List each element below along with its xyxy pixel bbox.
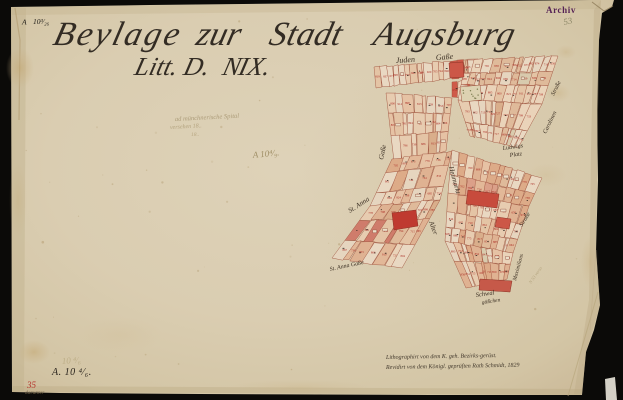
- svg-text:786: 786: [403, 144, 408, 148]
- svg-text:833: 833: [437, 174, 442, 178]
- svg-text:714: 714: [512, 78, 517, 82]
- svg-text:859: 859: [492, 270, 497, 274]
- svg-text:750: 750: [405, 73, 410, 77]
- svg-text:10 ⁴⁄₆: 10 ⁴⁄₆: [61, 355, 81, 366]
- svg-text:665: 665: [416, 229, 421, 233]
- svg-text:804: 804: [400, 254, 405, 258]
- svg-text:769: 769: [468, 166, 473, 170]
- svg-text:Augsburg: Augsburg: [368, 15, 521, 52]
- svg-text:736: 736: [436, 158, 441, 162]
- svg-text:867: 867: [343, 248, 348, 252]
- svg-text:755: 755: [471, 272, 476, 276]
- svg-text:690: 690: [496, 76, 501, 80]
- svg-text:754: 754: [437, 192, 442, 196]
- svg-text:761: 761: [422, 176, 427, 180]
- svg-text:darunter: darunter: [25, 390, 45, 396]
- svg-text:Litt.: Litt.: [131, 51, 182, 81]
- svg-text:771: 771: [488, 131, 493, 135]
- svg-text:727: 727: [496, 112, 501, 116]
- svg-text:686: 686: [421, 142, 426, 146]
- svg-text:715: 715: [410, 230, 415, 234]
- svg-text:Beylage: Beylage: [50, 15, 187, 52]
- svg-text:724: 724: [477, 187, 482, 191]
- svg-text:898: 898: [423, 207, 428, 211]
- svg-text:664: 664: [509, 243, 514, 247]
- svg-text:784: 784: [468, 186, 473, 190]
- svg-text:717: 717: [494, 132, 499, 136]
- svg-text:A. 10 ⁴⁄₆.: A. 10 ⁴⁄₆.: [51, 367, 92, 378]
- svg-text:794: 794: [399, 229, 404, 233]
- svg-text:792: 792: [503, 113, 508, 117]
- svg-text:685: 685: [463, 77, 468, 81]
- svg-text:Gaße: Gaße: [436, 52, 454, 62]
- svg-text:651: 651: [466, 272, 471, 276]
- svg-text:813: 813: [431, 141, 436, 145]
- svg-text:Stadt: Stadt: [266, 15, 348, 52]
- svg-text:920: 920: [427, 70, 432, 74]
- svg-text:846: 846: [444, 69, 449, 73]
- svg-text:894: 894: [408, 121, 413, 125]
- svg-text:799: 799: [519, 114, 524, 118]
- svg-text:821: 821: [507, 92, 512, 96]
- svg-text:744: 744: [438, 69, 443, 73]
- svg-text:868: 868: [504, 270, 509, 274]
- svg-text:911: 911: [519, 92, 524, 96]
- svg-text:35: 35: [26, 380, 37, 390]
- svg-text:793: 793: [465, 109, 470, 113]
- svg-text:779: 779: [425, 159, 430, 163]
- svg-text:758: 758: [525, 196, 530, 200]
- svg-text:798: 798: [381, 210, 386, 214]
- svg-text:866: 866: [371, 250, 376, 254]
- svg-text:898: 898: [393, 73, 398, 77]
- svg-text:888: 888: [476, 167, 481, 171]
- svg-text:669: 669: [503, 77, 508, 81]
- svg-text:710: 710: [468, 221, 473, 225]
- svg-text:874: 874: [535, 61, 540, 65]
- svg-text:824: 824: [487, 77, 492, 81]
- svg-text:10³⁄₂₆: 10³⁄₂₆: [33, 17, 50, 26]
- svg-text:742: 742: [519, 137, 524, 141]
- svg-text:893: 893: [451, 250, 456, 254]
- svg-text:Juden: Juden: [396, 55, 416, 65]
- svg-text:18..: 18..: [191, 132, 199, 138]
- svg-text:824: 824: [396, 195, 401, 199]
- svg-text:664: 664: [436, 121, 441, 125]
- svg-text:744: 744: [409, 178, 414, 182]
- svg-text:903: 903: [359, 250, 364, 254]
- svg-text:800: 800: [497, 92, 502, 96]
- svg-text:708: 708: [539, 92, 544, 96]
- svg-text:733: 733: [527, 114, 532, 118]
- svg-text:673: 673: [411, 160, 416, 164]
- svg-text:780: 780: [430, 208, 435, 212]
- svg-text:775: 775: [467, 237, 472, 241]
- svg-text:885: 885: [529, 62, 534, 66]
- svg-text:656: 656: [550, 62, 555, 66]
- svg-text:781: 781: [402, 121, 407, 125]
- svg-text:662: 662: [411, 71, 416, 75]
- svg-text:797: 797: [447, 103, 452, 107]
- svg-text:813: 813: [417, 102, 422, 106]
- svg-text:861: 861: [482, 223, 487, 227]
- svg-text:817: 817: [477, 237, 482, 241]
- svg-text:652: 652: [517, 63, 522, 67]
- svg-text:650: 650: [511, 211, 516, 215]
- svg-text:792: 792: [483, 130, 488, 134]
- svg-text:705: 705: [394, 163, 399, 167]
- svg-text:778: 778: [368, 211, 373, 215]
- svg-text:779: 779: [522, 180, 527, 184]
- svg-text:914: 914: [398, 102, 403, 106]
- svg-text:759: 759: [429, 103, 434, 107]
- svg-text:885: 885: [488, 91, 493, 95]
- svg-text:858: 858: [494, 64, 499, 68]
- svg-text:713: 713: [481, 111, 486, 115]
- svg-text:705: 705: [433, 70, 438, 74]
- svg-text:705: 705: [530, 182, 535, 186]
- svg-text:A: A: [21, 18, 27, 27]
- svg-text:685: 685: [427, 191, 432, 195]
- svg-text:844: 844: [449, 217, 454, 221]
- svg-text:843: 843: [466, 65, 471, 69]
- svg-text:771: 771: [488, 254, 493, 258]
- svg-text:666: 666: [508, 135, 513, 139]
- svg-text:819: 819: [375, 75, 380, 79]
- svg-text:837: 837: [383, 75, 388, 79]
- svg-text:800: 800: [390, 102, 395, 106]
- svg-text:765: 765: [485, 64, 490, 68]
- svg-text:739: 739: [412, 143, 417, 147]
- svg-text:653: 653: [438, 104, 443, 108]
- svg-text:Archiv: Archiv: [546, 5, 576, 15]
